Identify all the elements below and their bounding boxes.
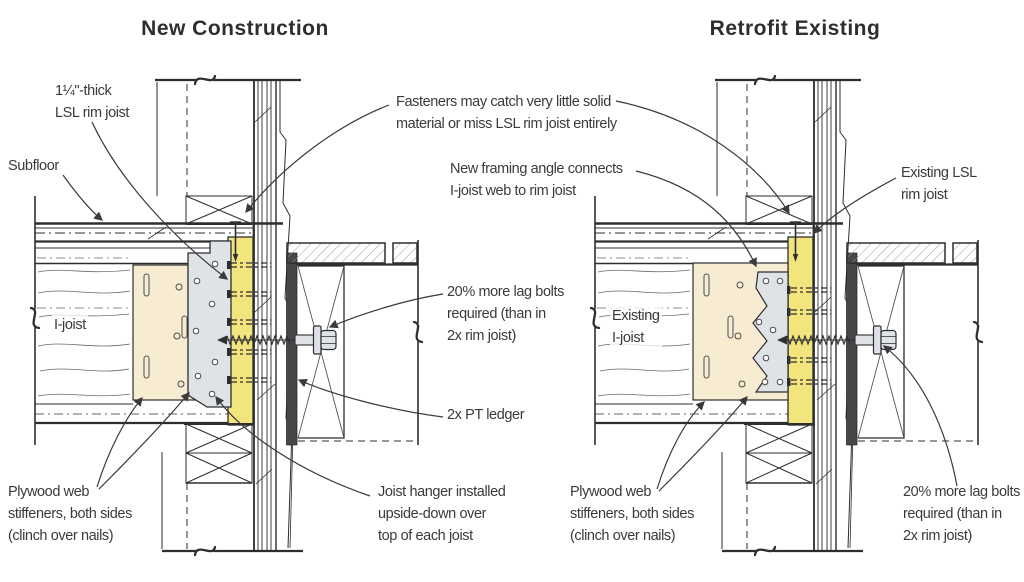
leader-plywood-left-b xyxy=(99,393,189,489)
leader-plywood-left-a xyxy=(97,398,142,487)
leader-pt-ledger xyxy=(299,380,443,417)
label-existing-i-joist: Existing I-joist xyxy=(610,305,662,349)
label-i-joist: I-joist xyxy=(52,314,88,336)
label-existing-rim-joist: Existing LSL rim joist xyxy=(901,162,977,206)
label-framing-angle: New framing angle connects I-joist web t… xyxy=(450,158,623,202)
label-fasteners: Fasteners may catch very little solid ma… xyxy=(396,91,617,135)
leader-lag-bolts-right xyxy=(884,346,957,486)
label-plywood-web-right: Plywood web stiffeners, both sides (clin… xyxy=(570,481,694,547)
label-lag-bolts-right: 20% more lag bolts required (than in 2x … xyxy=(903,481,1020,547)
joist-hanger xyxy=(188,241,231,407)
label-lag-bolts-left: 20% more lag bolts required (than in 2x … xyxy=(447,281,564,347)
leader-fasteners-left xyxy=(246,105,389,212)
leader-existing-rim xyxy=(814,178,896,233)
label-subfloor: Subfloor xyxy=(8,155,59,177)
leader-framing-angle xyxy=(636,171,756,266)
leader-subfloor xyxy=(63,175,102,220)
leader-lag-bolts-left xyxy=(330,294,443,327)
construction-detail-figure: New Construction Retrofit Existing 1¼"-t… xyxy=(0,0,1024,582)
leader-plywood-right-a xyxy=(657,402,704,489)
title-new-construction: New Construction xyxy=(95,17,375,41)
label-lsl-rim-joist: 1¼"-thick LSL rim joist xyxy=(55,80,129,124)
label-joist-hanger: Joist hanger installed upside-down over … xyxy=(378,481,505,547)
leader-plywood-right-b xyxy=(659,397,747,491)
title-retrofit-existing: Retrofit Existing xyxy=(655,17,935,41)
label-plywood-web-left: Plywood web stiffeners, both sides (clin… xyxy=(8,481,132,547)
label-pt-ledger: 2x PT ledger xyxy=(447,404,524,426)
